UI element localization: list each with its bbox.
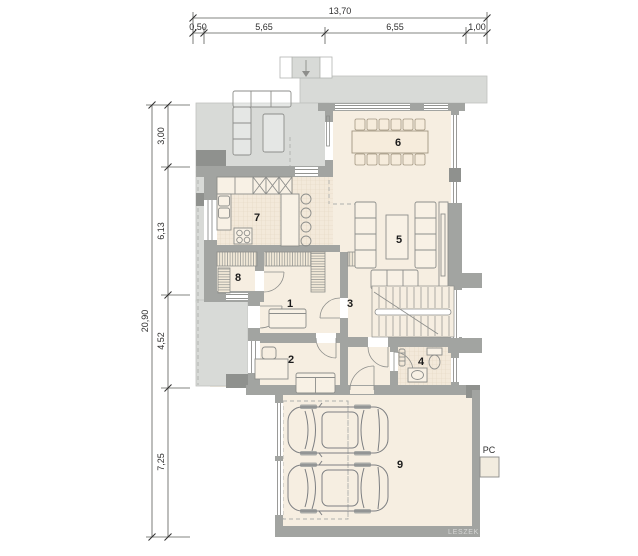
dim-top-seg-1: 5,65: [255, 22, 273, 32]
room-label-8: 8: [235, 272, 241, 284]
room-label-7: 7: [254, 212, 260, 224]
room-label-5: 5: [396, 234, 402, 246]
terrace-coffee-table: [263, 114, 284, 152]
dim-left-seg-3: 7,25: [156, 453, 166, 471]
sofa-right: [415, 202, 436, 268]
stair-rail: [375, 309, 451, 315]
tv-sideboard: [439, 202, 448, 288]
room-label-4: 4: [418, 356, 425, 368]
dim-top-seg-2: 6,55: [386, 22, 404, 32]
floor-plan-drawing: 13,70 0,50 5,65 6,55 1,00 20,90 3,00 6,1…: [0, 0, 638, 556]
entry-canopy: [280, 57, 332, 78]
desk: [255, 359, 288, 379]
dim-top-total: 13,70: [329, 6, 352, 16]
dim-left-total: 20,90: [140, 310, 150, 333]
dim-left-seg-2: 4,52: [156, 332, 166, 350]
room-label-2: 2: [288, 354, 294, 366]
dim-left-seg-0: 3,00: [156, 127, 166, 145]
dim-top-seg-0: 0,50: [189, 22, 207, 32]
dim-top-seg-3: 1,00: [468, 22, 486, 32]
staircase: [372, 286, 454, 337]
room-label-9: 9: [397, 459, 403, 471]
room-label-3: 3: [347, 298, 353, 310]
dining-table: [352, 131, 428, 153]
dim-left-seg-1: 6,13: [156, 222, 166, 240]
room-label-1: 1: [287, 298, 293, 310]
bar-counter: [281, 194, 299, 246]
room-label-6: 6: [395, 137, 401, 149]
hall-furniture: [269, 309, 306, 328]
floor-plan-page: 13,70 0,50 5,65 6,55 1,00 20,90 3,00 6,1…: [0, 0, 638, 556]
watermark: LESZEK KAL: [448, 529, 497, 536]
toilet-tank: [427, 348, 442, 355]
hall-bench: [269, 309, 306, 328]
sofa-left: [355, 202, 376, 268]
pc-label: PC: [483, 445, 496, 455]
